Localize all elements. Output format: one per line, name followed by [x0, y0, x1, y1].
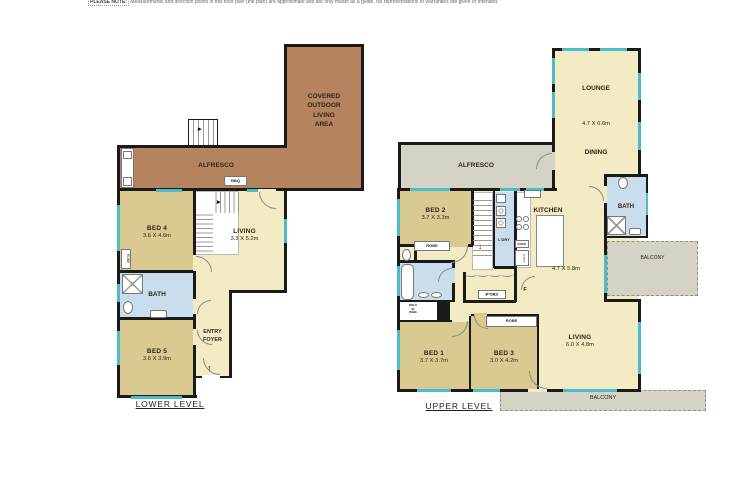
wall: [361, 44, 364, 190]
bath-right-label: BATH: [606, 203, 646, 211]
kitchen-sink: [524, 190, 541, 198]
lounge-label: LOUNGE: [566, 85, 626, 94]
window: [600, 48, 627, 51]
wall: [398, 142, 554, 145]
basin-bath-right: [629, 228, 641, 235]
wall: [117, 188, 364, 191]
wall: [229, 290, 232, 378]
balcony-right: [607, 241, 698, 296]
window: [638, 322, 641, 374]
burner: [516, 224, 522, 230]
wall: [463, 272, 466, 302]
living-lower-label-name: LIVING: [207, 228, 282, 235]
bed5-label-dim: 3.6 X 3.9m: [120, 356, 194, 362]
disclaimer-prefix: PLEASE NOTE:: [88, 0, 129, 6]
alfresco-upper-label: ALFRESCO: [446, 162, 506, 171]
basin-left-2: [431, 292, 442, 298]
bed1-label: BED 13.7 X 3.7m: [399, 350, 469, 364]
window: [500, 188, 520, 191]
burner: [523, 224, 529, 230]
window: [563, 389, 617, 392]
kitchen-dim: 4.7 X 5.8m: [536, 266, 596, 274]
wall: [638, 48, 641, 176]
bath-lower-label: BATH: [135, 291, 179, 300]
wall: [463, 300, 516, 303]
pantry-bifold: [489, 272, 501, 277]
wall: [229, 290, 287, 293]
living-upper-label: LIVING6.0 X 4.8m: [540, 334, 620, 348]
basin-left-1: [418, 292, 429, 298]
living-lower-label-dim: 3.3 X 5.2m: [207, 236, 282, 242]
pantry-label: P'TRY: [478, 292, 506, 298]
window: [417, 389, 451, 392]
disclaimer-text: PLEASE NOTE: Measurements and direction …: [88, 0, 498, 5]
alfresco-lower-label: ALFRESCO: [186, 162, 246, 171]
door-gap: [528, 389, 547, 392]
outdoor-sink: [123, 151, 132, 159]
bed4-label-dim: 3.6 X 4.6m: [120, 233, 194, 239]
pantry-bifold: [465, 272, 477, 277]
wall: [604, 299, 641, 302]
pantry-bifold: [501, 272, 513, 277]
window: [638, 73, 641, 100]
wall: [119, 270, 196, 273]
disclaimer-body: Measurements and direction points in thi…: [130, 0, 498, 5]
window: [473, 389, 500, 392]
wall: [604, 174, 648, 177]
bed3-label: BED 33.0 X 4.2m: [471, 350, 537, 364]
bed1-label-name: BED 1: [399, 350, 469, 357]
balcony-bottom-label: BALCONY: [500, 395, 706, 402]
outdoor-fridge: [123, 177, 132, 186]
basin-lower: [150, 310, 167, 318]
toilet-bath-right: [618, 177, 628, 189]
wall: [397, 320, 452, 323]
bed5-label: BED 53.6 X 3.9m: [120, 348, 194, 362]
toilet-wc: [402, 249, 411, 261]
window: [117, 284, 120, 302]
shower-bath-right: [607, 216, 626, 235]
bed2-label-dim: 3.7 X 3.3m: [399, 215, 472, 221]
entry-foyer-label: ENTRY FOYER: [196, 329, 229, 344]
bed2-label-name: BED 2: [399, 207, 472, 214]
bed3-label-dim: 3.0 X 4.2m: [471, 358, 537, 364]
wall: [117, 145, 120, 191]
toilet-lower: [123, 301, 133, 314]
wall: [493, 191, 496, 268]
wall: [284, 44, 364, 47]
window: [552, 58, 555, 84]
window: [156, 189, 182, 192]
living-upper-label-name: LIVING: [540, 334, 620, 341]
bathtub: [401, 264, 414, 300]
robe-nook-label: ROBE: [121, 251, 130, 267]
washer: [496, 206, 506, 216]
lower-level-title: LOWER LEVEL: [128, 399, 212, 410]
oven-label: OVEN: [515, 242, 529, 246]
dining-label: DINING: [566, 149, 626, 158]
window: [552, 92, 555, 118]
wall: [494, 266, 516, 269]
laundry-sink: [496, 194, 506, 203]
kitchen-island: [536, 215, 564, 267]
living-lower-label: LIVING3.3 X 5.2m: [207, 228, 282, 242]
door-gap: [604, 186, 607, 203]
bed5-label-name: BED 5: [120, 348, 194, 355]
bed1-label-dim: 3.7 X 3.7m: [399, 358, 469, 364]
window: [397, 266, 400, 296]
room-lounge-dining: [554, 50, 638, 190]
entry-arrow: ↑: [207, 364, 212, 373]
stairs-lower-arrow: ▸: [217, 199, 221, 206]
stairs-outdoor: [188, 119, 218, 146]
burner: [516, 216, 522, 222]
stairs-outdoor-arrow: ▸: [198, 126, 202, 133]
door-gap: [452, 268, 455, 283]
kitchen-label: KITCHEN: [520, 207, 576, 216]
wall: [604, 236, 648, 239]
bed3-label-name: BED 3: [471, 350, 537, 357]
bed4-label-name: BED 4: [120, 225, 194, 232]
bed4-label: BED 43.6 X 4.6m: [120, 225, 194, 239]
wall-block: [437, 302, 450, 320]
window: [638, 122, 641, 150]
wall: [398, 142, 401, 190]
burner: [523, 216, 529, 222]
window: [284, 219, 287, 243]
dryer: [496, 218, 506, 228]
robe-bed3-label: ROBE: [486, 318, 537, 323]
stairs-down-arrow: ↓: [478, 243, 482, 251]
door-gap: [552, 152, 555, 170]
pantry-bifold: [477, 272, 489, 277]
laundry-label: L'DRY: [492, 237, 516, 242]
lounge-dim: 4.7 X 6.6m: [566, 121, 626, 129]
living-upper-label-dim: 6.0 X 4.8m: [540, 342, 620, 348]
balcony-right-label: BALCONY: [607, 255, 698, 262]
fridge-label: F: [518, 287, 532, 294]
walk-in-robe-label: WALK IN ROBE: [400, 304, 426, 315]
pantry-cupboard-label: P'TRY: [517, 251, 526, 265]
robe-hall-label: ROBE: [414, 243, 450, 248]
room-laundry: [494, 192, 514, 268]
bed2-label: BED 23.7 X 3.3m: [399, 207, 472, 221]
stairs-upper: [473, 196, 492, 260]
window: [410, 188, 450, 191]
door-gap: [202, 375, 220, 378]
bbq-label: BBQ: [224, 178, 247, 183]
window: [562, 48, 589, 51]
door-gap: [193, 299, 196, 314]
floorplan-canvas: PLEASE NOTE: Measurements and direction …: [0, 0, 750, 500]
upper-level-title: UPPER LEVEL: [417, 401, 501, 412]
covered-outdoor-label: COVERED OUTDOOR LIVING AREA: [287, 92, 361, 130]
